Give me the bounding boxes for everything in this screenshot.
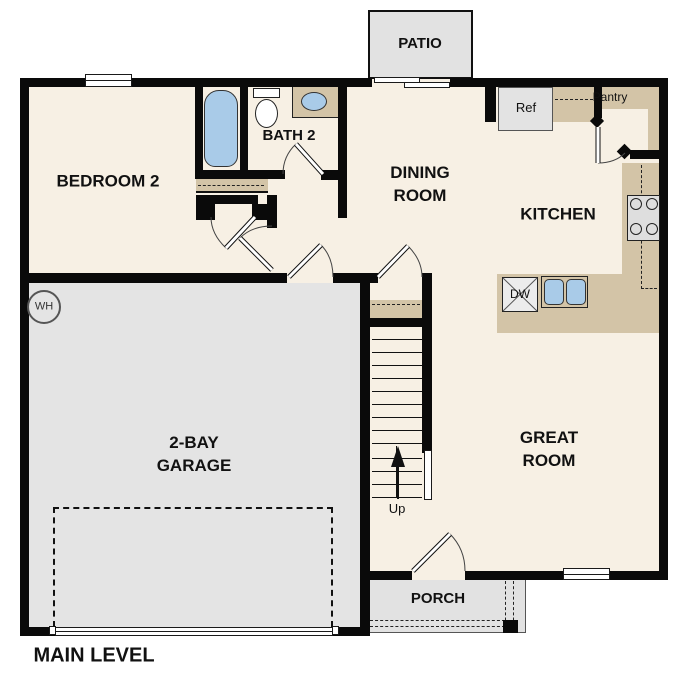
bedroom2-label: BEDROOM 2 [57,171,160,194]
pantry-label: Pantry [593,89,628,105]
great-room-label: GREATROOM [520,427,578,473]
wall-bedroom-doorway [267,195,277,228]
garage-door-end [332,626,339,635]
porch-post [503,620,518,633]
greatroom-window [563,568,610,580]
bath2-label: BATH 2 [262,126,315,146]
wall-pantry-south [630,150,668,159]
wall-north-west [20,78,372,87]
wall-bath-south-a [195,170,285,179]
dining-room-label: DININGROOM [390,162,450,208]
stove-burner [646,223,658,235]
coat-closet-jamb [370,273,378,283]
wall-west [20,78,29,636]
pantry-shelf-side [648,109,659,150]
wall-garage-east [360,273,370,636]
wall-bedroom-bath [195,87,203,172]
stove-burner [630,223,642,235]
stairs-up-label: Up [389,500,406,518]
kitchen-upper-cabinet [553,87,594,122]
porch-label: PORCH [411,589,465,609]
closet-jamb-left [196,204,215,220]
stove-burner [646,198,658,210]
stairs-divider [396,446,397,498]
kitchen-label: KITCHEN [520,204,596,227]
patio-slider-panel [404,82,450,88]
bathtub [204,90,238,167]
wall-bath-dining [338,87,347,218]
wall-closet-south [196,195,258,204]
wall-stub-ref [485,87,496,122]
patio-label: PATIO [398,34,442,54]
floor-plan: BEDROOM 2 BATH 2 DININGROOM KITCHEN GREA… [0,0,687,687]
stairs-upper [372,327,422,446]
door-threshold [412,571,465,580]
wall-bath-south-b [321,170,338,180]
stairs-winders [372,446,422,498]
wall-garage-north-a [20,273,287,283]
toilet-bowl [255,99,278,128]
refrigerator-label: Ref [516,99,536,117]
shelf-dash [555,99,593,100]
wall-stair-east [422,273,432,453]
sink-basin [566,279,586,305]
coat-closet-shelf [370,300,422,318]
cabinet-dash [641,288,657,289]
porch-roofline [370,620,505,621]
sink-basin [544,279,564,305]
water-heater-label: WH [35,300,53,315]
dishwasher-label: DW [510,286,530,302]
vanity-sink [301,92,327,111]
wall-tub-east [240,87,248,172]
stair-railing [424,450,432,500]
plan-title: MAIN LEVEL [33,643,154,670]
garage-bay-outline [53,507,333,627]
bedroom2-window [85,74,132,87]
wall-stair-head [370,318,422,327]
stove-burner [630,198,642,210]
toilet-tank [253,88,280,98]
shelf-dash [198,185,264,186]
wall-north-east [450,78,668,87]
shelf-dash [372,304,420,305]
garage-label: 2-BAYGARAGE [157,432,232,478]
wall-greatroom-south-a [368,571,412,580]
garage-door-end [49,626,56,635]
garage-door [55,627,333,636]
porch-roofline [370,626,505,627]
